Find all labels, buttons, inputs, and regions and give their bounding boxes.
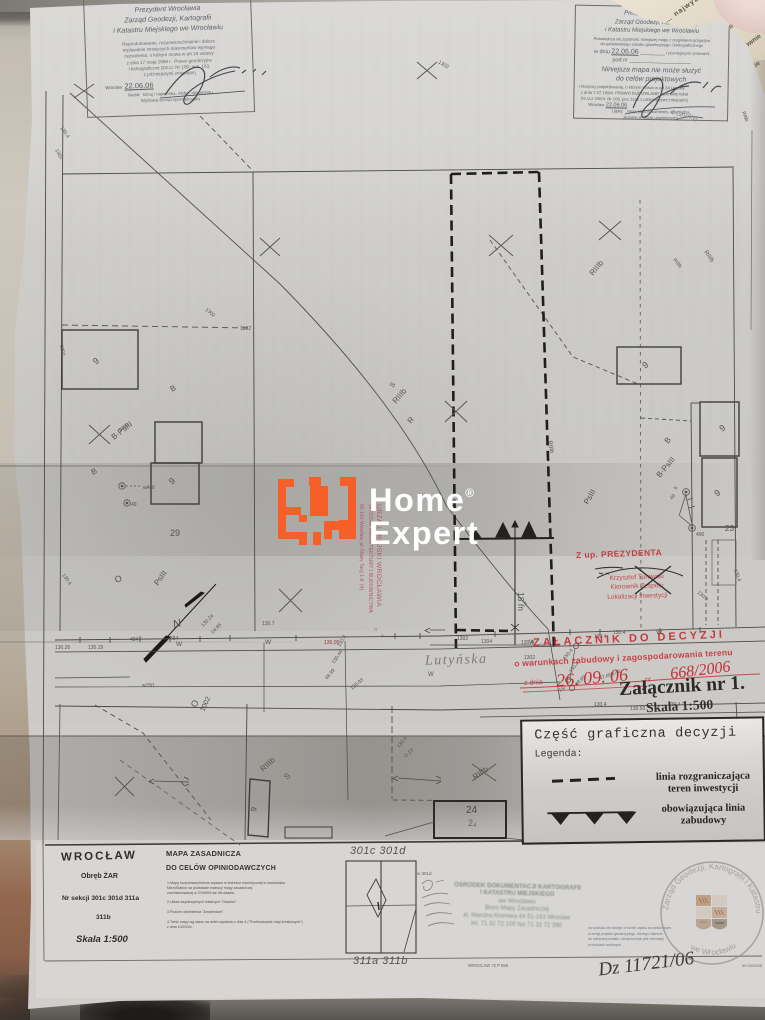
svg-text:130.4: 130.4	[732, 569, 742, 583]
svg-text:24: 24	[466, 805, 478, 816]
svg-text:130.4: 130.4	[594, 702, 607, 708]
svg-text:484: 484	[130, 637, 139, 643]
svg-text:RIIIb: RIIIb	[702, 250, 715, 264]
svg-text:49: 49	[669, 493, 677, 501]
svg-text:B: B	[169, 383, 178, 393]
svg-text:RIIIb: RIIIb	[471, 764, 490, 781]
svg-text:1302: 1302	[240, 326, 251, 332]
svg-text:RIIIb: RIIIb	[258, 755, 277, 773]
svg-text:130.93: 130.93	[630, 706, 646, 712]
svg-text:484: 484	[170, 636, 179, 642]
svg-text:1302: 1302	[457, 636, 468, 642]
svg-text:130.4: 130.4	[58, 126, 70, 140]
svg-text:23: 23	[725, 524, 734, 533]
svg-text:RIIIb: RIIIb	[546, 440, 554, 454]
svg-text:9: 9	[91, 356, 101, 367]
svg-text:O.23: O.23	[403, 747, 415, 759]
svg-text:130.05: 130.05	[324, 640, 340, 646]
svg-text:B: B	[90, 466, 99, 476]
svg-text:130.4: 130.4	[60, 573, 72, 587]
svg-text:1302: 1302	[204, 307, 217, 319]
svg-text:9: 9	[712, 488, 722, 499]
svg-text:1302: 1302	[437, 60, 450, 71]
svg-text:130.93: 130.93	[349, 677, 365, 692]
svg-text:b: b	[673, 485, 680, 491]
svg-text:we Wrocławiu: we Wrocławiu	[688, 941, 738, 957]
svg-text:130.19: 130.19	[88, 645, 104, 651]
svg-text:9: 9	[717, 423, 727, 434]
svg-text:1304: 1304	[481, 639, 492, 645]
svg-text:S: S	[389, 381, 398, 389]
svg-text:490: 490	[696, 532, 705, 538]
svg-text:PsIII: PsIII	[582, 488, 598, 506]
svg-text:9: 9	[167, 476, 177, 487]
svg-text:130.7: 130.7	[262, 621, 275, 627]
svg-text:O: O	[113, 573, 123, 585]
svg-text:2₄: 2₄	[468, 818, 477, 828]
svg-text:130.20: 130.20	[55, 645, 71, 651]
svg-text:48.99: 48.99	[324, 668, 337, 682]
svg-text:1002: 1002	[199, 696, 212, 713]
svg-text:W: W	[176, 641, 183, 648]
svg-text:04.85: 04.85	[210, 622, 223, 635]
svg-text:B: B	[663, 435, 673, 445]
svg-text:130.24: 130.24	[200, 613, 215, 628]
svg-text:O: O	[189, 698, 201, 709]
svg-text:W: W	[428, 672, 434, 678]
svg-text:1302: 1302	[58, 344, 66, 356]
svg-text:130.44: 130.44	[331, 649, 345, 665]
svg-text:RIIIb: RIIIb	[740, 111, 749, 123]
svg-text:1302: 1302	[53, 148, 64, 161]
svg-text:w150: w150	[142, 683, 154, 689]
svg-text:130.4: 130.4	[396, 736, 409, 750]
svg-text:130.4: 130.4	[696, 590, 710, 603]
svg-text:RIIIb: RIIIb	[588, 258, 606, 277]
svg-text:N: N	[172, 617, 183, 631]
svg-text:PsIII: PsIII	[152, 569, 169, 587]
svg-text:wASf: wASf	[143, 485, 155, 491]
svg-text:B·PsIII: B·PsIII	[655, 455, 677, 479]
svg-text:RIIIb: RIIIb	[671, 257, 683, 269]
svg-text:S: S	[282, 771, 292, 781]
svg-text:W: W	[265, 639, 272, 646]
svg-text:29: 29	[170, 528, 180, 538]
svg-text:9: 9	[640, 360, 650, 371]
svg-text:R: R	[406, 415, 417, 425]
svg-text:49: 49	[131, 502, 137, 508]
svg-text:9: 9	[249, 806, 259, 812]
